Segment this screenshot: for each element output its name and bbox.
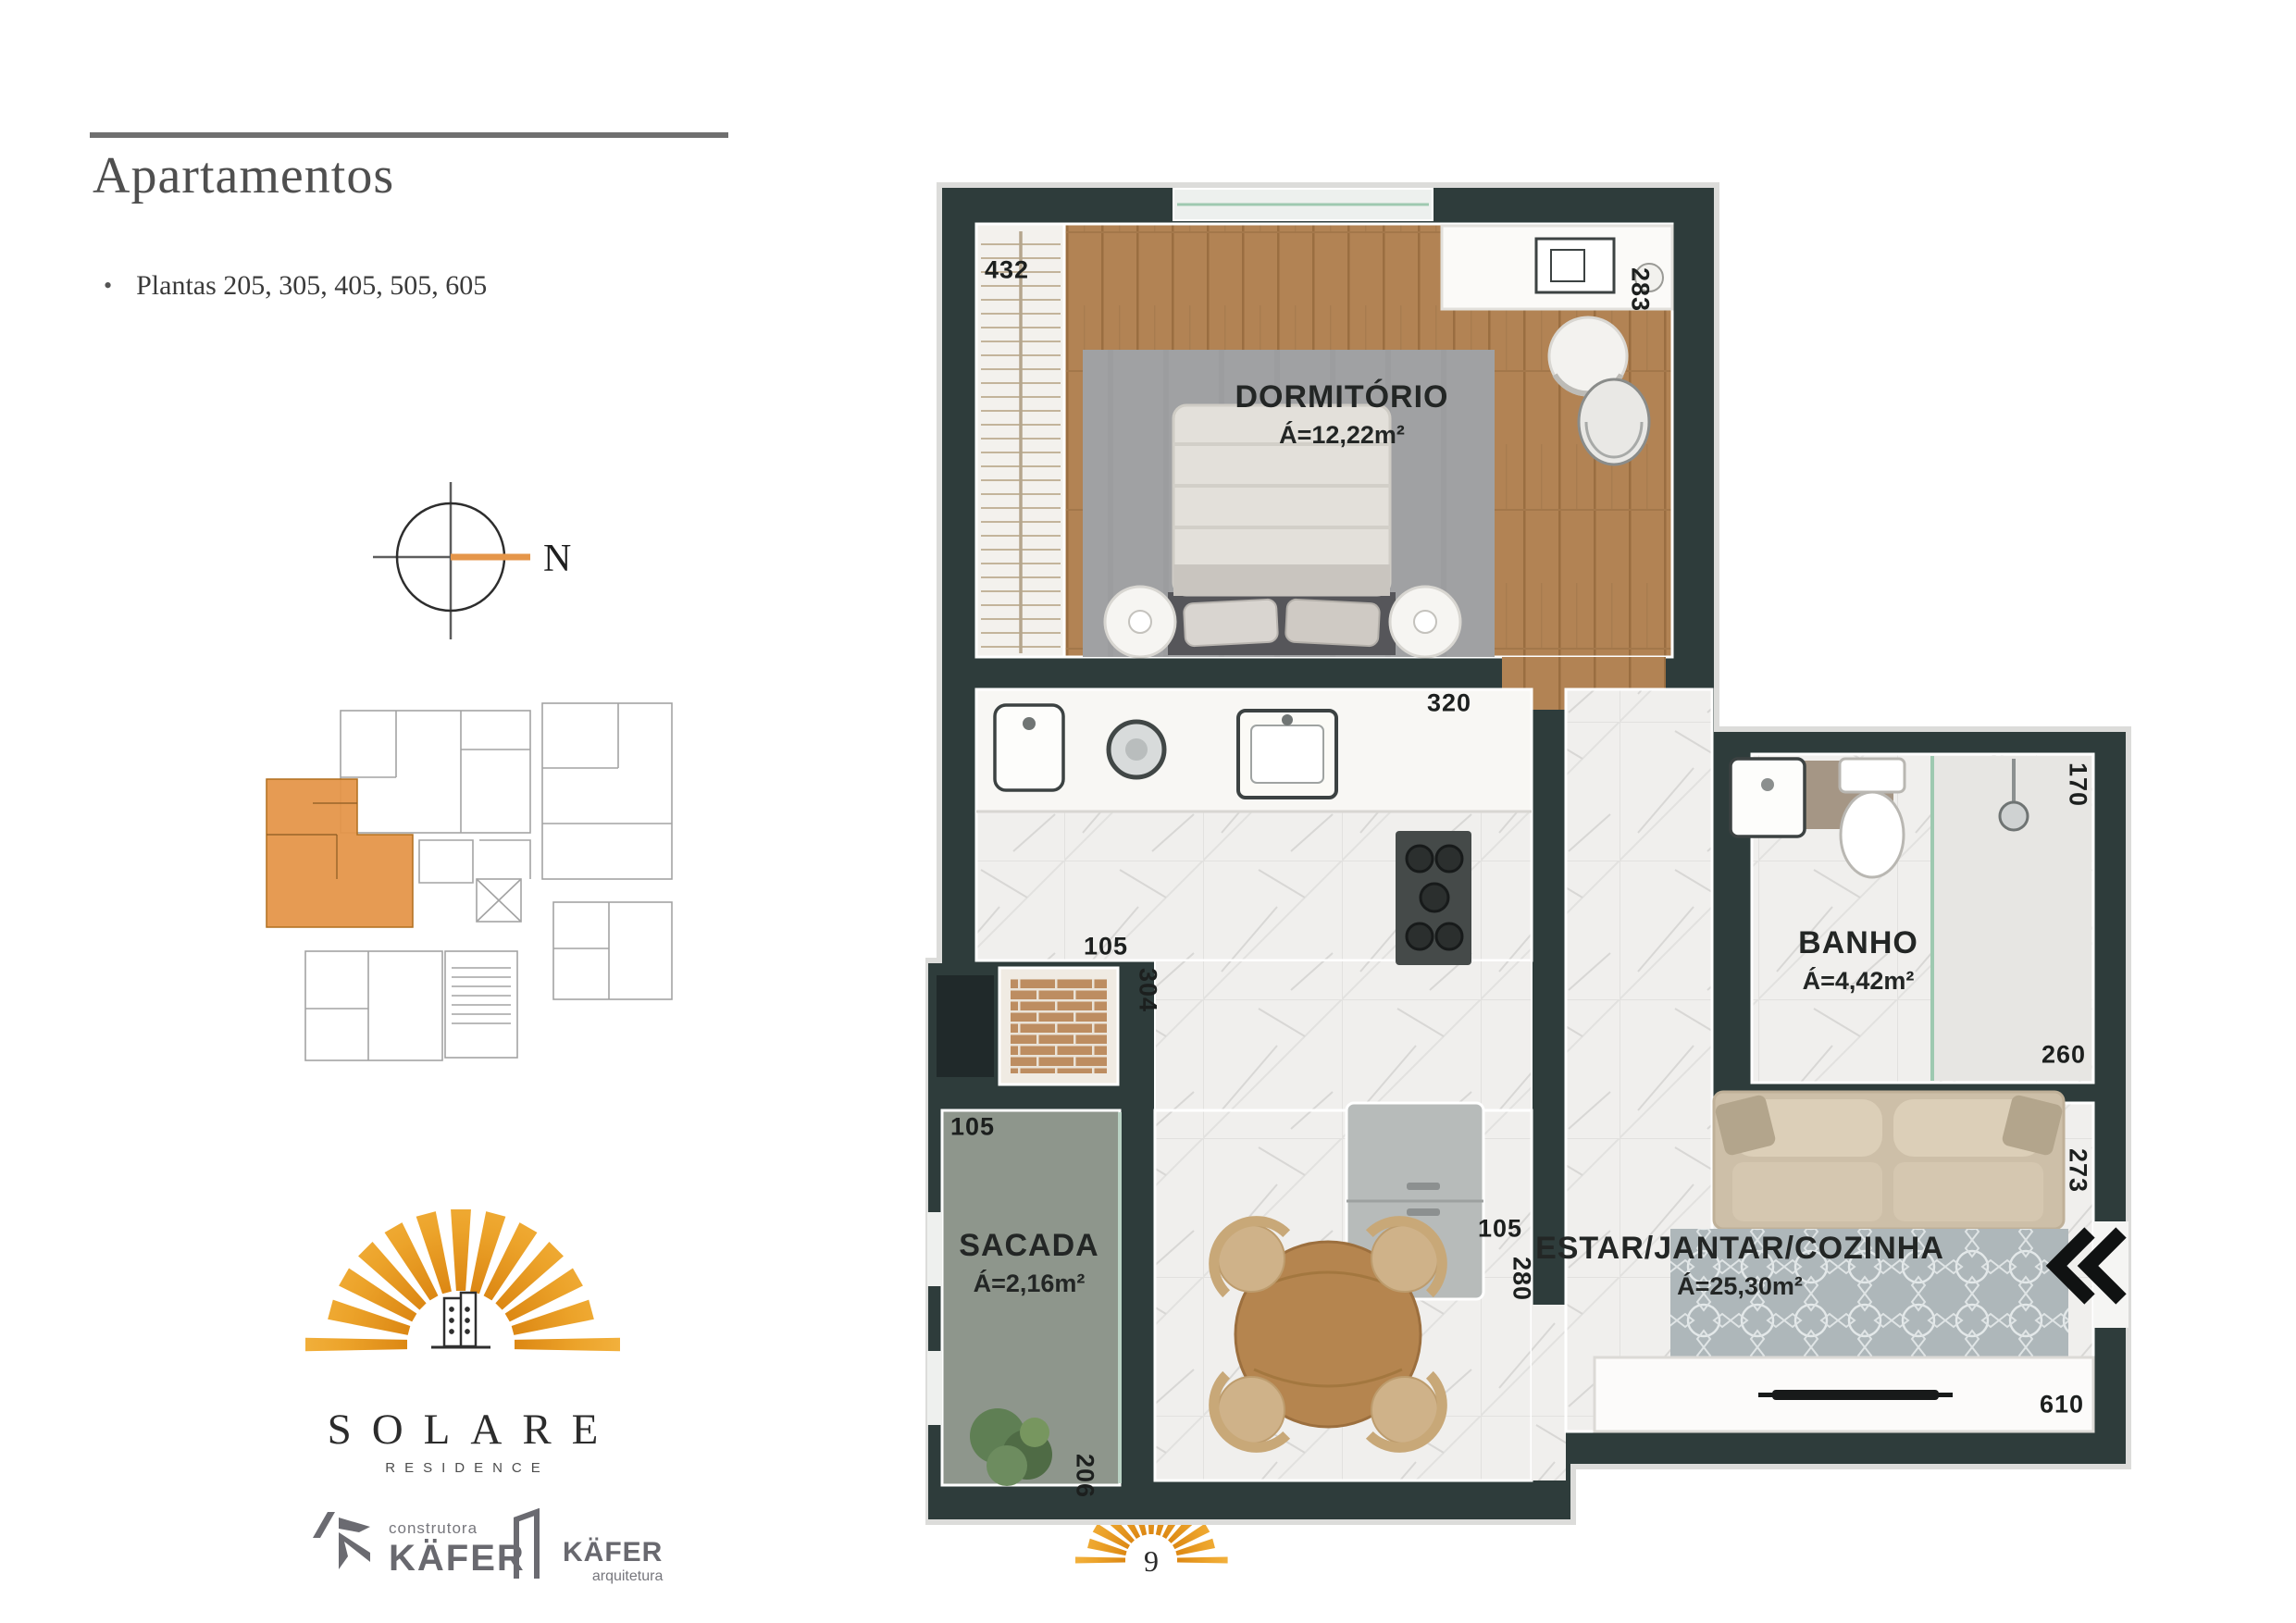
dimension-label: 105 xyxy=(1478,1215,1522,1244)
dimension-label: 260 xyxy=(2042,1041,2086,1070)
construtora-label: construtora xyxy=(389,1520,526,1536)
dimension-label: 105 xyxy=(950,1113,995,1142)
room-label-dormitorio: DORMITÓRIO Á=12,22m² xyxy=(1235,379,1449,450)
dimension-layer: 432283320170105304105280260273105206610 xyxy=(925,167,2147,1527)
sun-ray xyxy=(305,1338,407,1352)
brochure-page: Apartamentos • Plantas 205, 305, 405, 50… xyxy=(0,0,2296,1623)
dimension-label: 304 xyxy=(1134,968,1162,1012)
dimension-label: 283 xyxy=(1626,267,1655,312)
bullet-label: Plantas 205, 305, 405, 505, 605 xyxy=(136,270,487,302)
brand-subtitle: RESIDENCE xyxy=(259,1460,666,1476)
north-compass-icon: N xyxy=(366,467,606,652)
dimension-label: 206 xyxy=(1071,1454,1099,1498)
room-label-sacada: SACADA Á=2,16m² xyxy=(959,1228,1098,1298)
dimension-label: 105 xyxy=(1084,933,1128,961)
dimension-label: 170 xyxy=(2064,762,2092,807)
kafer-construtora-mark-icon xyxy=(311,1505,376,1577)
dimension-label: 273 xyxy=(2064,1148,2092,1193)
bullet-icon: • xyxy=(104,270,112,302)
arquitetura-name: KÄFER xyxy=(563,1539,663,1567)
dimension-label: 432 xyxy=(985,256,1029,285)
page-title: Apartamentos xyxy=(93,146,394,205)
solare-sunburst-icon xyxy=(305,1189,620,1379)
compass-north-label: N xyxy=(543,538,571,580)
dimension-label: 610 xyxy=(2040,1391,2084,1419)
logo-kafer-construtora: construtora KÄFER xyxy=(311,1505,526,1577)
kafer-arquitetura-mark-icon xyxy=(509,1508,550,1584)
room-label-estar: ESTAR/JANTAR/COZINHA Á=25,30m² xyxy=(1535,1231,1944,1301)
dimension-label: 320 xyxy=(1427,689,1471,718)
sun-ray xyxy=(451,1209,471,1291)
construtora-name: KÄFER xyxy=(389,1540,526,1577)
sun-ray xyxy=(1177,1557,1228,1564)
building-icon xyxy=(431,1293,490,1347)
plantas-bullet: • Plantas 205, 305, 405, 505, 605 xyxy=(104,270,487,302)
brand-name: SOLARE xyxy=(259,1405,666,1455)
page-number: 9 xyxy=(1144,1544,1159,1578)
logo-kafer-arquitetura: KÄFER arquitetura xyxy=(509,1508,663,1584)
arquitetura-label: arquitetura xyxy=(592,1569,664,1584)
main-floorplan: 432283320170105304105280260273105206610 … xyxy=(925,167,2147,1527)
sun-ray xyxy=(515,1338,620,1352)
room-label-banho: BANHO Á=4,42m² xyxy=(1798,925,1918,996)
overview-highlight-unit xyxy=(267,779,413,927)
overview-floorplate xyxy=(248,694,683,1075)
sun-ray xyxy=(1075,1557,1125,1564)
dimension-label: 280 xyxy=(1508,1257,1536,1301)
header-rule xyxy=(90,132,728,138)
